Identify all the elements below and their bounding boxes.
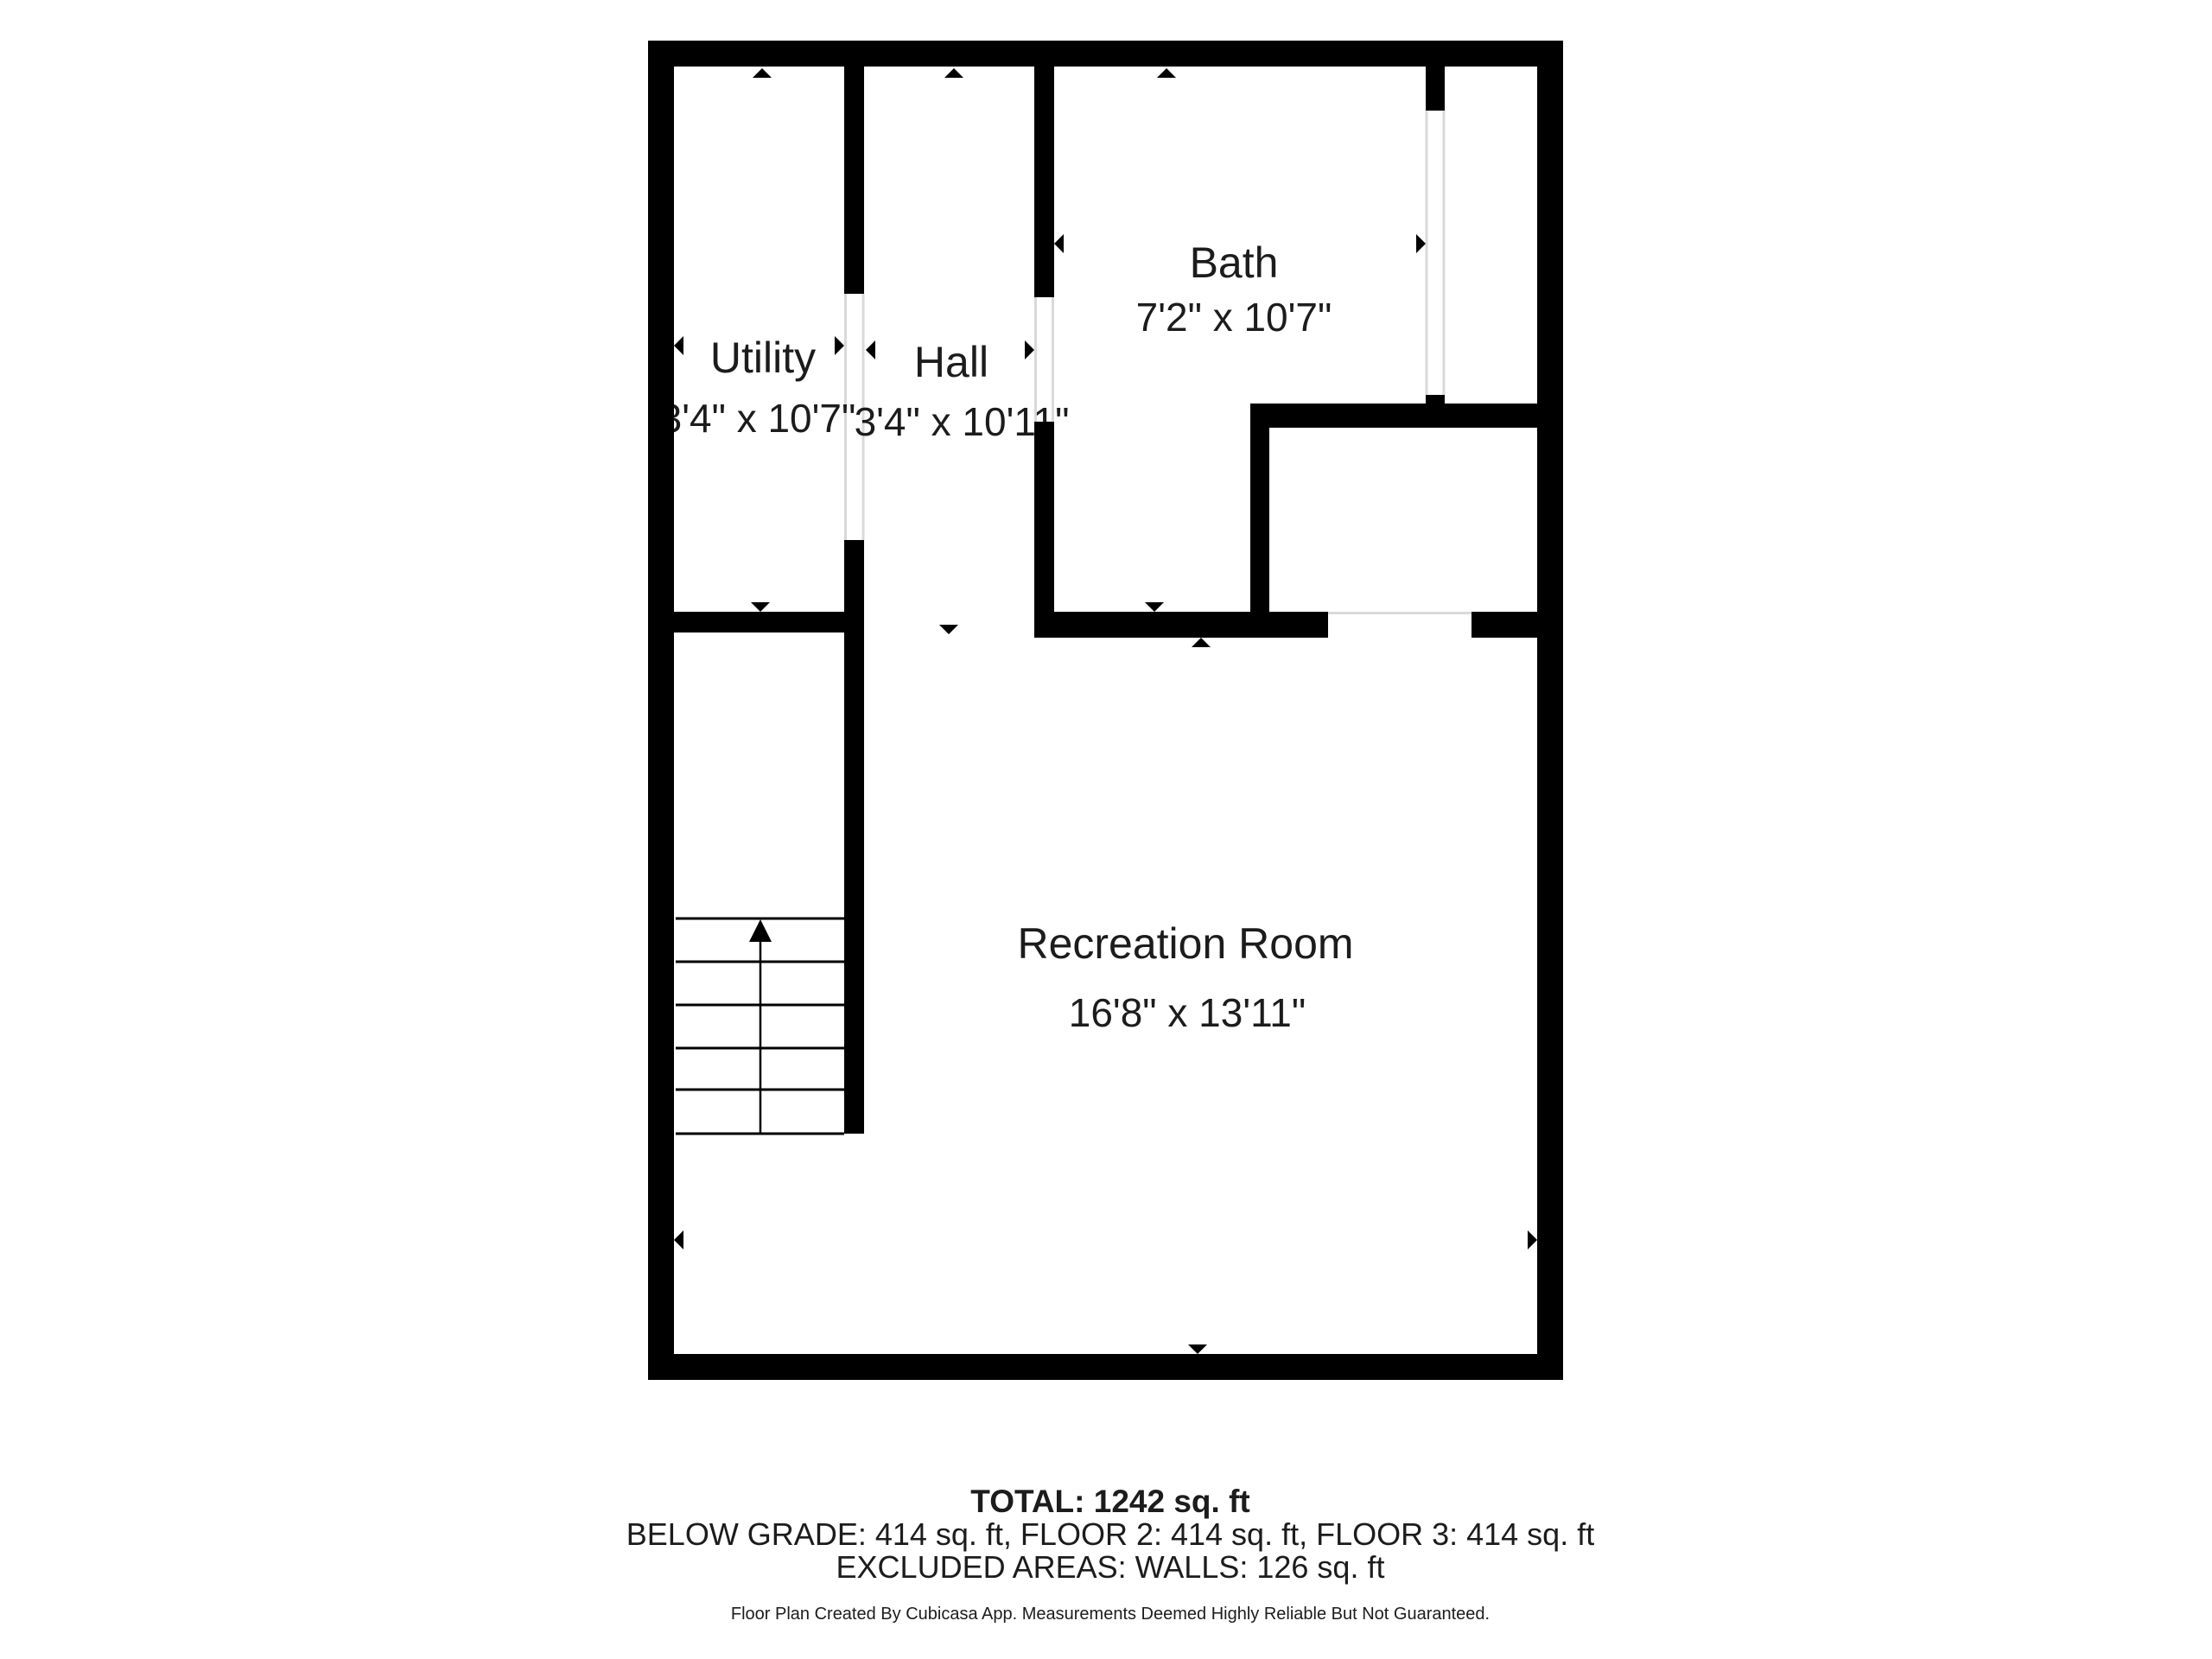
stairs-up-arrow-icon	[749, 919, 772, 942]
arrow-right-icon	[835, 336, 844, 355]
excluded-areas-text: EXCLUDED AREAS: WALLS: 126 sq. ft	[836, 1549, 1385, 1585]
wall-closet-top	[1250, 404, 1537, 428]
outer-wall-left	[648, 41, 674, 1380]
floor-areas-text: BELOW GRADE: 414 sq. ft, FLOOR 2: 414 sq…	[626, 1516, 1594, 1552]
wall-utility-bottom	[648, 612, 864, 632]
staircase	[676, 918, 844, 1134]
wall-hall-bath-upper	[1034, 67, 1054, 297]
arrow-up-icon	[1192, 638, 1211, 647]
wall-utility-hall-upper	[844, 67, 864, 294]
outer-wall-bottom	[648, 1354, 1563, 1380]
arrow-up-icon	[753, 68, 772, 78]
room-label-recreation: Recreation Room	[1017, 919, 1353, 968]
wall-window-stub-bottom	[1426, 395, 1445, 428]
room-dim-bath: 7'2" x 10'7"	[1136, 295, 1332, 340]
room-dim-utility: 3'4" x 10'7"	[660, 396, 856, 441]
area-summary: TOTAL: 1242 sq. ft BELOW GRADE: 414 sq. …	[626, 1484, 1594, 1624]
arrow-down-icon	[939, 625, 958, 634]
floor-plan-page: Utility 3'4" x 10'7" Hall 3'4" x 10'11" …	[0, 0, 2212, 1659]
wall-bath-bottom-right	[1471, 612, 1537, 638]
arrow-down-icon	[751, 602, 770, 612]
wall-bath-bottom-left	[1034, 612, 1328, 638]
arrow-down-icon	[1188, 1344, 1207, 1354]
wall-hall-bath-lower	[1034, 422, 1054, 638]
arrow-left-icon	[866, 340, 875, 359]
room-label-hall: Hall	[914, 338, 988, 386]
wall-window-stub-top	[1426, 67, 1445, 111]
total-area-text: TOTAL: 1242 sq. ft	[970, 1484, 1249, 1519]
disclaimer-text: Floor Plan Created By Cubicasa App. Meas…	[731, 1605, 1490, 1624]
arrow-up-icon	[1157, 68, 1176, 78]
arrow-right-icon	[1025, 340, 1034, 359]
arrow-right-icon	[1528, 1230, 1537, 1249]
arrow-down-icon	[1145, 602, 1164, 612]
outer-wall-right	[1537, 41, 1563, 1380]
arrow-left-icon	[1054, 234, 1064, 253]
wall-closet-left	[1250, 404, 1269, 638]
room-label-utility: Utility	[710, 334, 816, 382]
arrow-up-icon	[944, 68, 963, 78]
room-dim-recreation: 16'8" x 13'11"	[1069, 990, 1306, 1035]
measurement-arrows	[674, 68, 1537, 1354]
floor-plan: Utility 3'4" x 10'7" Hall 3'4" x 10'11" …	[0, 0, 2212, 1659]
outer-wall-top	[648, 41, 1563, 67]
arrow-right-icon	[1416, 234, 1426, 253]
arrow-left-icon	[674, 1230, 683, 1249]
arrow-left-icon	[674, 336, 683, 355]
room-label-bath: Bath	[1190, 238, 1279, 287]
